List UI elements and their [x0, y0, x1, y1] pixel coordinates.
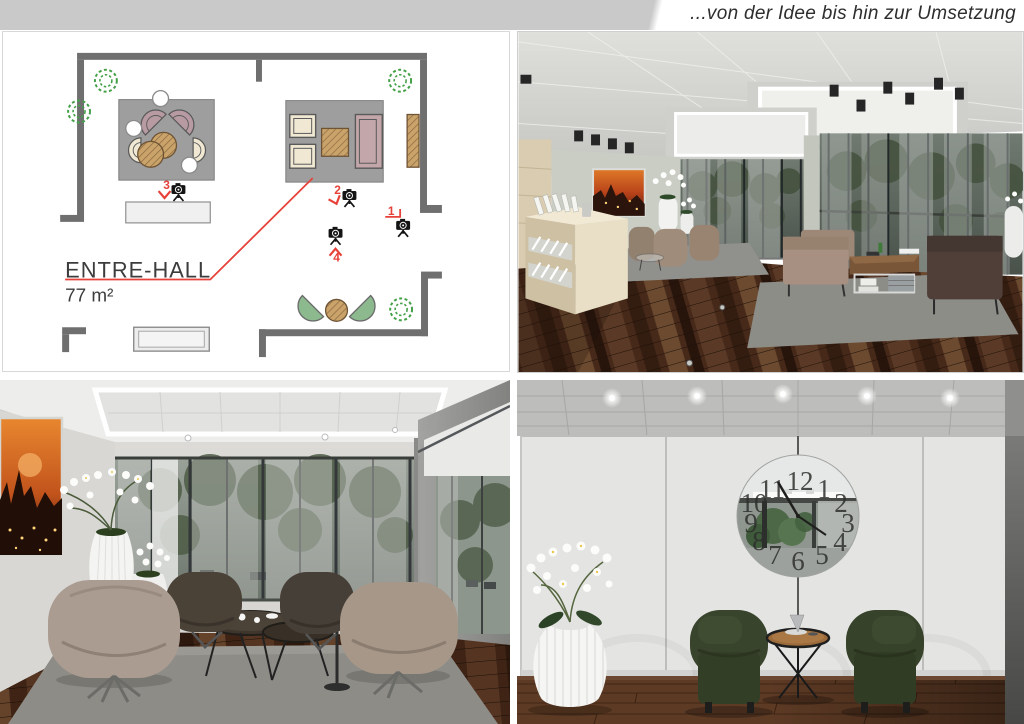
camera-number: 3: [163, 178, 170, 192]
floor-plan: 3 2 1 4 ENTRE-HALL 77 m²: [3, 32, 509, 371]
small-dish: [808, 632, 818, 635]
camera-marker-2: 2: [329, 183, 357, 207]
sheer-curtain: [748, 159, 780, 258]
floor-plan-panel: 3 2 1 4 ENTRE-HALL 77 m²: [2, 31, 510, 372]
plant-icon: [95, 70, 117, 92]
painting-cityscape: [593, 169, 645, 216]
armchair-green: [349, 295, 381, 327]
plan-left-seating-group: [119, 91, 214, 180]
floor-socket: [686, 360, 692, 366]
console-table-bottom: [134, 327, 210, 351]
wall-clock-mirror: 12 1 2 3 4 5 6 7 8 9 10 11: [737, 455, 859, 577]
render-waiting-area-svg: 12 1 2 3 4 5 6 7 8 9 10 11: [517, 380, 1024, 724]
svg-text:6: 6: [791, 546, 805, 576]
render-hall-overview-svg: [518, 32, 1023, 372]
console-table: [126, 202, 211, 223]
green-bottle: [878, 243, 882, 253]
sideboard: [407, 115, 419, 168]
render-hall-overview: [517, 31, 1024, 373]
camera-number: 2: [334, 183, 341, 197]
round-wood-table: [138, 141, 164, 167]
plant-icon: [389, 70, 411, 92]
plan-walls: [60, 53, 442, 357]
painting-cityscape: [0, 418, 62, 555]
render-lounge-svg: [0, 380, 510, 724]
camera-number: 1: [388, 204, 395, 218]
ceiling: [517, 380, 1024, 436]
armchair-taupe-front-left: [48, 580, 180, 702]
window-header: [115, 442, 420, 458]
armchair-green: [292, 295, 324, 327]
light-cove-left: [666, 108, 817, 162]
sheer-curtain: [340, 458, 406, 600]
header-band: ...von der Idee bis hin zur Umsetzung: [0, 0, 1024, 30]
svg-text:4: 4: [833, 527, 847, 557]
cushion: [872, 616, 916, 644]
svg-text:12: 12: [787, 466, 814, 496]
svg-text:7: 7: [768, 540, 782, 570]
room-area-label: 77 m²: [65, 285, 113, 306]
side-table: [126, 120, 142, 136]
render-waiting-area: 12 1 2 3 4 5 6 7 8 9 10 11: [517, 380, 1024, 724]
camera-marker-3: 3: [159, 178, 186, 201]
camera-marker-4: 4: [329, 227, 343, 265]
side-table: [153, 91, 169, 107]
coffee-table: [322, 128, 349, 156]
render-lounge-seating: [0, 380, 510, 724]
tagline: ...von der Idee bis hin zur Umsetzung: [690, 0, 1016, 30]
floor-socket: [720, 305, 725, 310]
armchair-taupe-front-right: [340, 582, 458, 698]
plan-right-seating-group: [286, 101, 419, 183]
svg-text:5: 5: [815, 540, 829, 570]
room-name-label: ENTRE-HALL: [65, 258, 211, 283]
cushion: [698, 616, 742, 644]
plant-icon: [390, 298, 412, 320]
side-table: [181, 157, 197, 173]
svg-text:1: 1: [817, 474, 831, 504]
glass-table: [636, 254, 664, 262]
camera-marker-1: 1: [385, 204, 410, 237]
plate: [785, 629, 807, 635]
camera-number: 4: [333, 251, 340, 265]
doorway-right: [1005, 436, 1024, 724]
plan-bottom-seating-group: [292, 295, 381, 327]
presentation-sheet: ...von der Idee bis hin zur Umsetzung: [0, 0, 1024, 724]
round-wood-table: [326, 299, 348, 321]
